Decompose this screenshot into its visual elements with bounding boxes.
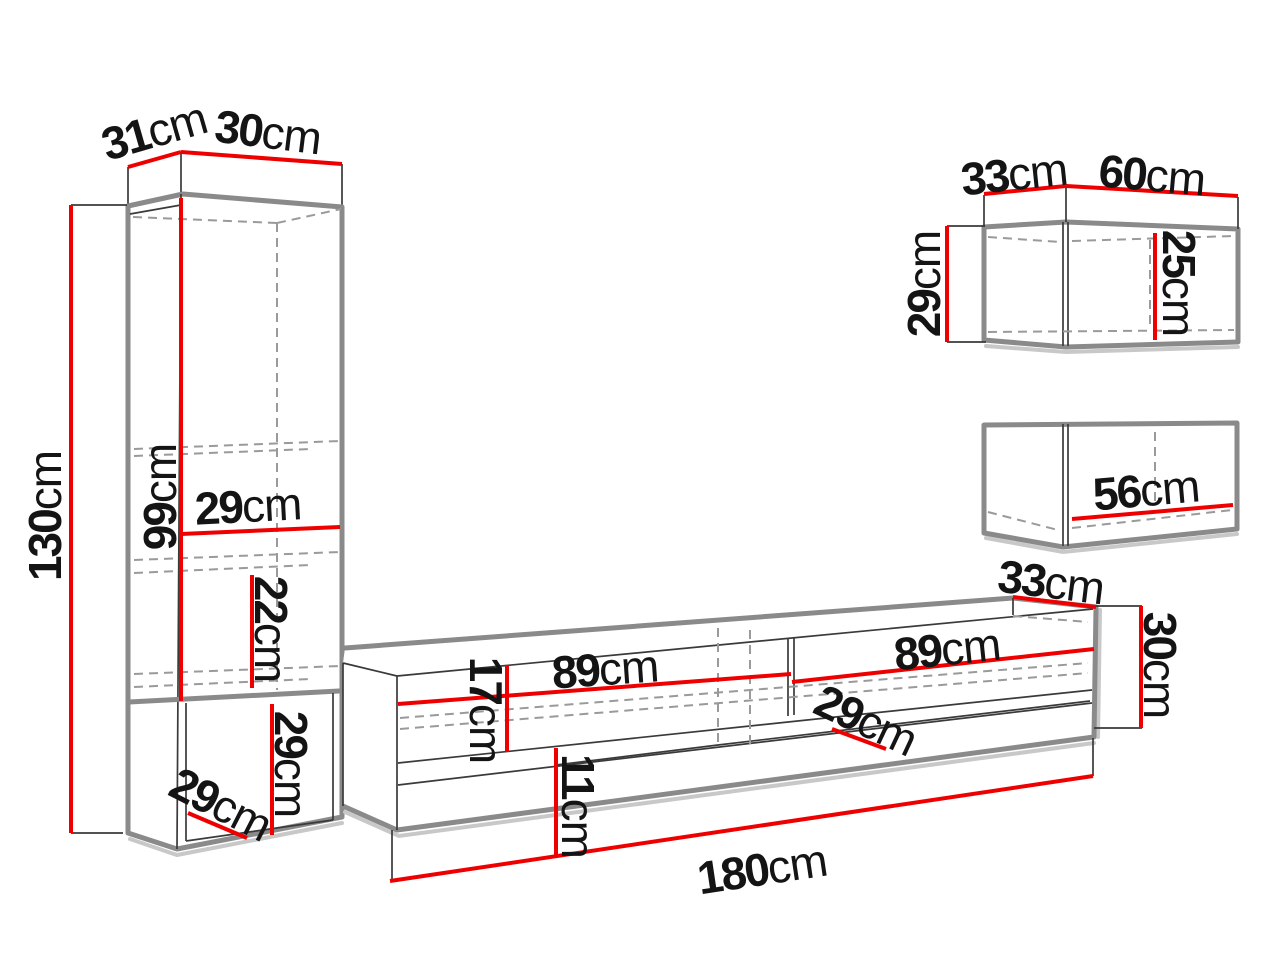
wall-shelf-cabinet: 56cm [984,423,1237,552]
dim-label-tall-shelf-spacing: 22cm [245,576,297,683]
dim-label-tall-height: 130cm [19,451,71,581]
dim-label-tall-shelf-width: 29cm [193,477,302,535]
diagram-canvas: 31cm 30cm 130cm 99cm 29cm 22cm 29cm 29cm [0,0,1280,960]
dim-label-tv-total-width: 180cm [694,834,830,905]
dim-label-wc-top-width: 60cm [1097,144,1208,205]
dim-label-tv-right-width: 89cm [891,618,1002,681]
tall-cabinet-height-bracket [71,205,127,833]
dim-label-tall-inner-height: 99cm [134,444,186,551]
furniture-dimension-diagram: 31cm 30cm 130cm 99cm 29cm 22cm 29cm 29cm [0,0,1280,960]
dim-label-tv-bottom-gap: 11cm [552,754,604,858]
dim-label-tv-shelf-height: 17cm [460,657,512,764]
dim-label-tv-left-width: 89cm [550,639,660,698]
wall-cabinet: 33cm 60cm 29cm 25cm [898,143,1238,352]
dim-label-wc-top-depth: 33cm [958,143,1069,206]
tall-cabinet: 31cm 30cm 130cm 99cm 29cm 22cm 29cm 29cm [19,91,342,855]
dim-label-ws-inner-width: 56cm [1091,459,1202,520]
tv-stand: 89cm 89cm 17cm 11cm 33cm 30cm 29cm 180cm [343,550,1186,905]
dim-label-wc-height: 29cm [898,231,950,338]
dim-label-tv-end-height: 30cm [1134,612,1186,719]
dim-label-wc-inner-height: 25cm [1153,230,1205,337]
